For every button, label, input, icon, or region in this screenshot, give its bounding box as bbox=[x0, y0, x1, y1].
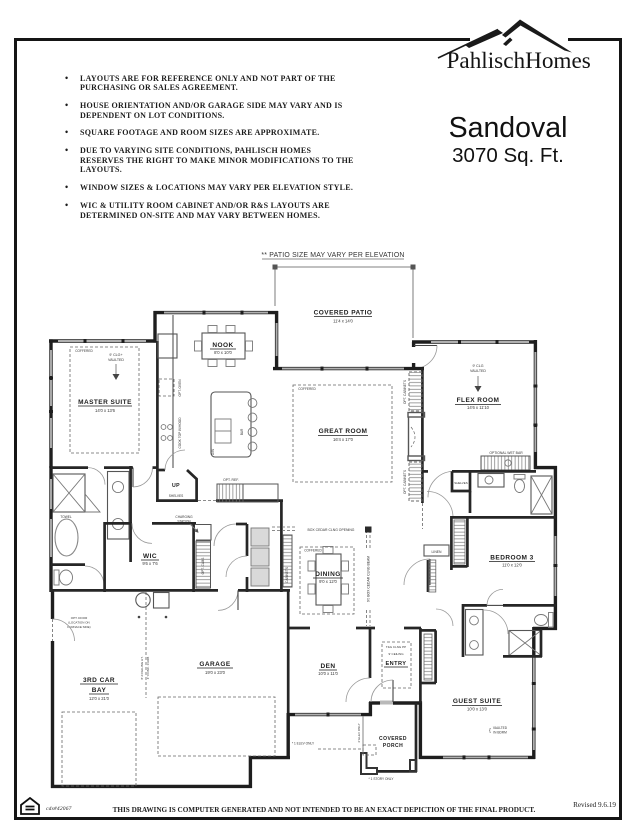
svg-text:T&G CLNG PP: T&G CLNG PP bbox=[386, 645, 406, 649]
svg-text:SHELVES: SHELVES bbox=[169, 494, 183, 498]
svg-text:SHELVES: SHELVES bbox=[454, 481, 468, 485]
svg-text:11'4 x 14'0: 11'4 x 14'0 bbox=[333, 319, 353, 324]
svg-text:STATION: STATION bbox=[177, 520, 191, 524]
svg-text:NOOK: NOOK bbox=[212, 342, 233, 349]
svg-text:9' CLG+: 9' CLG+ bbox=[109, 353, 122, 357]
svg-text:3RD CAR: 3RD CAR bbox=[83, 677, 115, 684]
svg-text:CABINETS: CABINETS bbox=[285, 567, 289, 583]
svg-text:GUEST SUITE: GUEST SUITE bbox=[453, 698, 502, 705]
svg-text:OPT. REF.: OPT. REF. bbox=[223, 478, 239, 482]
svg-text:8'-0 CEILING HT.: 8'-0 CEILING HT. bbox=[140, 656, 144, 679]
svg-text:MASTER SUITE: MASTER SUITE bbox=[78, 399, 132, 406]
svg-text:OPT. CABS: OPT. CABS bbox=[201, 558, 205, 575]
svg-text:4' ELEV ONLY: 4' ELEV ONLY bbox=[357, 723, 361, 743]
svg-text:PORCH: PORCH bbox=[383, 743, 403, 749]
svg-text:VAULTED: VAULTED bbox=[108, 358, 124, 362]
svg-text:OPT. CABINETS: OPT. CABINETS bbox=[403, 470, 407, 494]
svg-text:VAULTED: VAULTED bbox=[470, 369, 486, 373]
svg-text:DINING: DINING bbox=[315, 571, 340, 578]
svg-text:OPTIONAL WET BAR: OPTIONAL WET BAR bbox=[489, 451, 523, 455]
svg-text:10'0 x 11'0: 10'0 x 11'0 bbox=[318, 671, 338, 676]
svg-text:4" CONC. CURB: 4" CONC. CURB bbox=[146, 657, 150, 680]
svg-text:14'6 x 11'10: 14'6 x 11'10 bbox=[467, 405, 490, 410]
svg-text:9' CEILING: 9' CEILING bbox=[388, 652, 404, 656]
svg-text:ENTRY: ENTRY bbox=[385, 661, 406, 667]
svg-text:DEN: DEN bbox=[320, 663, 335, 670]
svg-text:WIC: WIC bbox=[143, 553, 157, 560]
svg-text:19'0 x 23'0: 19'0 x 23'0 bbox=[205, 670, 226, 675]
svg-text:COOK TOP W/HOOD: COOK TOP W/HOOD bbox=[178, 417, 182, 449]
svg-text:12'0 x 21'0: 12'0 x 21'0 bbox=[89, 696, 110, 701]
svg-text:9'6 x 7'6: 9'6 x 7'6 bbox=[142, 561, 158, 566]
svg-text:IN BDRM: IN BDRM bbox=[493, 731, 507, 735]
svg-text:OPT. DOOR: OPT. DOOR bbox=[71, 616, 88, 620]
svg-text:* 1 STORY ONLY: * 1 STORY ONLY bbox=[369, 777, 395, 781]
svg-text:9' CLG: 9' CLG bbox=[472, 364, 483, 368]
svg-text:D/W: D/W bbox=[211, 449, 215, 455]
svg-text:UP: UP bbox=[172, 483, 180, 489]
svg-text:OPT. CABINETS: OPT. CABINETS bbox=[403, 380, 407, 404]
svg-text:COFFERED: COFFERED bbox=[304, 549, 322, 553]
svg-text:BOX CEDAR CLNG OPENING: BOX CEDAR CLNG OPENING bbox=[308, 528, 355, 532]
svg-text:VAULTED: VAULTED bbox=[493, 726, 508, 730]
svg-text:BEDROOM 3: BEDROOM 3 bbox=[490, 555, 533, 562]
svg-text:GREAT ROOM: GREAT ROOM bbox=[319, 428, 368, 435]
svg-text:11'0 x 12'0: 11'0 x 12'0 bbox=[502, 563, 522, 568]
svg-text:(LOCATION ON: (LOCATION ON bbox=[68, 621, 89, 625]
svg-text:COVERED PATIO: COVERED PATIO bbox=[314, 310, 373, 317]
svg-text:COVERED: COVERED bbox=[379, 736, 407, 742]
svg-text:GARAGE: GARAGE bbox=[199, 661, 230, 668]
svg-text:COFFERED: COFFERED bbox=[298, 387, 316, 391]
svg-text:OPT. OVEN: OPT. OVEN bbox=[178, 379, 182, 397]
svg-text:COFFERED: COFFERED bbox=[75, 349, 93, 353]
svg-text:8'0 x 10'0: 8'0 x 10'0 bbox=[214, 350, 232, 355]
svg-text:9'0 BOX CEDAR CLNG BEAM: 9'0 BOX CEDAR CLNG BEAM bbox=[367, 556, 371, 602]
svg-text:LINEN: LINEN bbox=[432, 550, 443, 554]
svg-text:9'0 x 12'0: 9'0 x 12'0 bbox=[319, 579, 337, 584]
svg-text:BAY: BAY bbox=[92, 687, 107, 694]
svg-text:** PATIO SIZE MAY VARY PER ELE: ** PATIO SIZE MAY VARY PER ELEVATION bbox=[261, 252, 404, 259]
svg-text:TOWEL: TOWEL bbox=[60, 515, 72, 519]
svg-text:FLEX ROOM: FLEX ROOM bbox=[457, 397, 500, 404]
svg-text:16'4 x 17'0: 16'4 x 17'0 bbox=[333, 437, 354, 442]
svg-text:14'0 x 13'6: 14'0 x 13'6 bbox=[95, 408, 116, 413]
svg-text:{: { bbox=[489, 728, 491, 734]
svg-text:* 1 ELEV ONLY: * 1 ELEV ONLY bbox=[292, 742, 315, 746]
svg-text:BAR: BAR bbox=[240, 428, 244, 435]
svg-text:10'0 x 13'0: 10'0 x 13'0 bbox=[467, 707, 488, 712]
svg-text:CHARGING: CHARGING bbox=[175, 515, 193, 519]
